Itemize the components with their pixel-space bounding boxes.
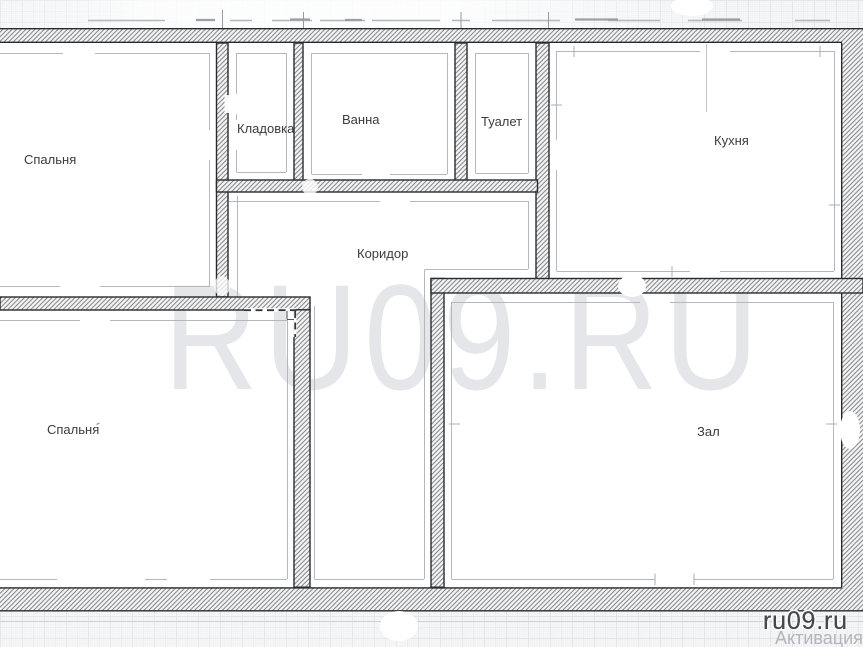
svg-text:Коридор: Коридор: [357, 246, 408, 261]
svg-text:Кладовка: Кладовка: [237, 121, 295, 136]
svg-text:Спальня: Спальня: [47, 422, 99, 437]
svg-text:Зал: Зал: [697, 424, 720, 439]
svg-text:Активация: Активация: [775, 628, 863, 647]
svg-text:Спальня: Спальня: [24, 152, 76, 167]
svg-text:Туалет: Туалет: [481, 114, 522, 129]
svg-text:Ванна: Ванна: [342, 112, 380, 127]
svg-text:Кухня: Кухня: [714, 133, 749, 148]
